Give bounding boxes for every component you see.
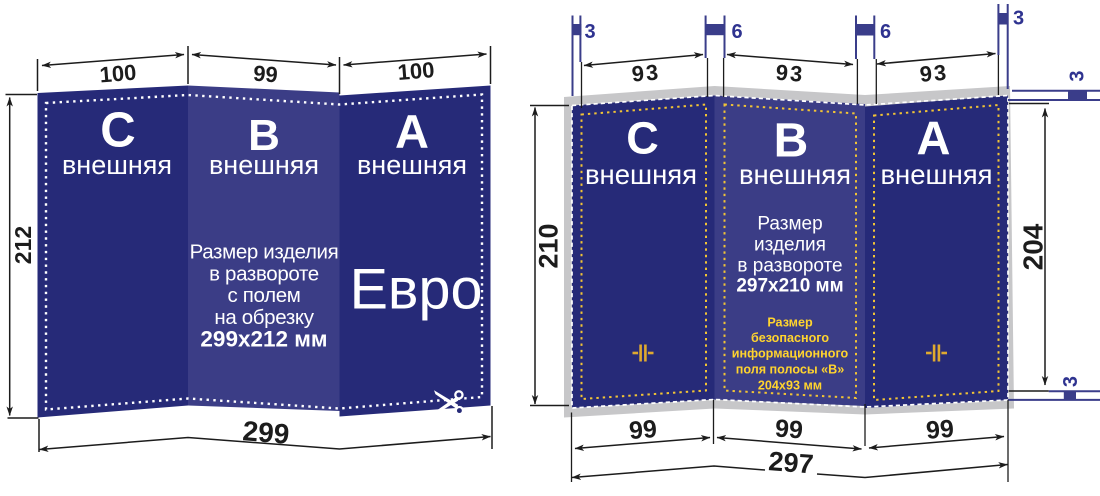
svg-text:информационного: информационного [732, 347, 849, 361]
svg-text:6: 6 [880, 21, 891, 43]
svg-text:99: 99 [925, 415, 955, 445]
svg-text:A: A [917, 112, 951, 165]
svg-text:3: 3 [1067, 70, 1089, 81]
svg-text:204: 204 [1018, 223, 1049, 270]
svg-text:297х210 мм: 297х210 мм [736, 276, 843, 297]
svg-text:безопасного: безопасного [751, 331, 829, 345]
svg-text:100: 100 [397, 57, 436, 85]
svg-text:изделия: изделия [754, 235, 826, 256]
svg-text:99: 99 [628, 415, 658, 445]
svg-text:внешняя: внешняя [357, 150, 467, 180]
svg-text:внешняя: внешняя [880, 159, 992, 190]
svg-text:93: 93 [775, 60, 805, 87]
svg-text:Евро: Евро [350, 258, 483, 322]
svg-text:93: 93 [631, 59, 661, 86]
svg-text:с полем: с полем [227, 284, 300, 307]
svg-text:204х93 мм: 204х93 мм [758, 378, 822, 392]
svg-text:Размер: Размер [757, 214, 822, 235]
svg-text:99: 99 [774, 414, 804, 444]
svg-text:Размер: Размер [767, 315, 813, 329]
svg-text:в развороте: в развороте [737, 256, 842, 277]
svg-text:C: C [626, 113, 659, 164]
svg-text:внешняя: внешняя [62, 150, 172, 180]
svg-text:внешняя: внешняя [585, 159, 697, 190]
svg-text:212: 212 [10, 226, 36, 264]
svg-text:3: 3 [1013, 8, 1024, 30]
svg-text:299х212 мм: 299х212 мм [200, 327, 327, 352]
svg-text:100: 100 [99, 60, 138, 88]
svg-text:93: 93 [919, 60, 949, 87]
svg-text:поля полосы «В»: поля полосы «В» [736, 362, 845, 376]
svg-text:6: 6 [732, 21, 743, 43]
svg-text:Размер изделия: Размер изделия [190, 241, 339, 264]
svg-text:299: 299 [242, 415, 291, 450]
svg-text:99: 99 [252, 61, 278, 88]
svg-text:3: 3 [585, 21, 596, 43]
svg-text:внешняя: внешняя [209, 150, 319, 180]
svg-text:внешняя: внешняя [739, 159, 851, 190]
svg-text:210: 210 [534, 223, 564, 268]
svg-text:в развороте: в развороте [209, 262, 319, 285]
svg-text:297: 297 [767, 446, 814, 479]
svg-text:3: 3 [1060, 376, 1082, 387]
